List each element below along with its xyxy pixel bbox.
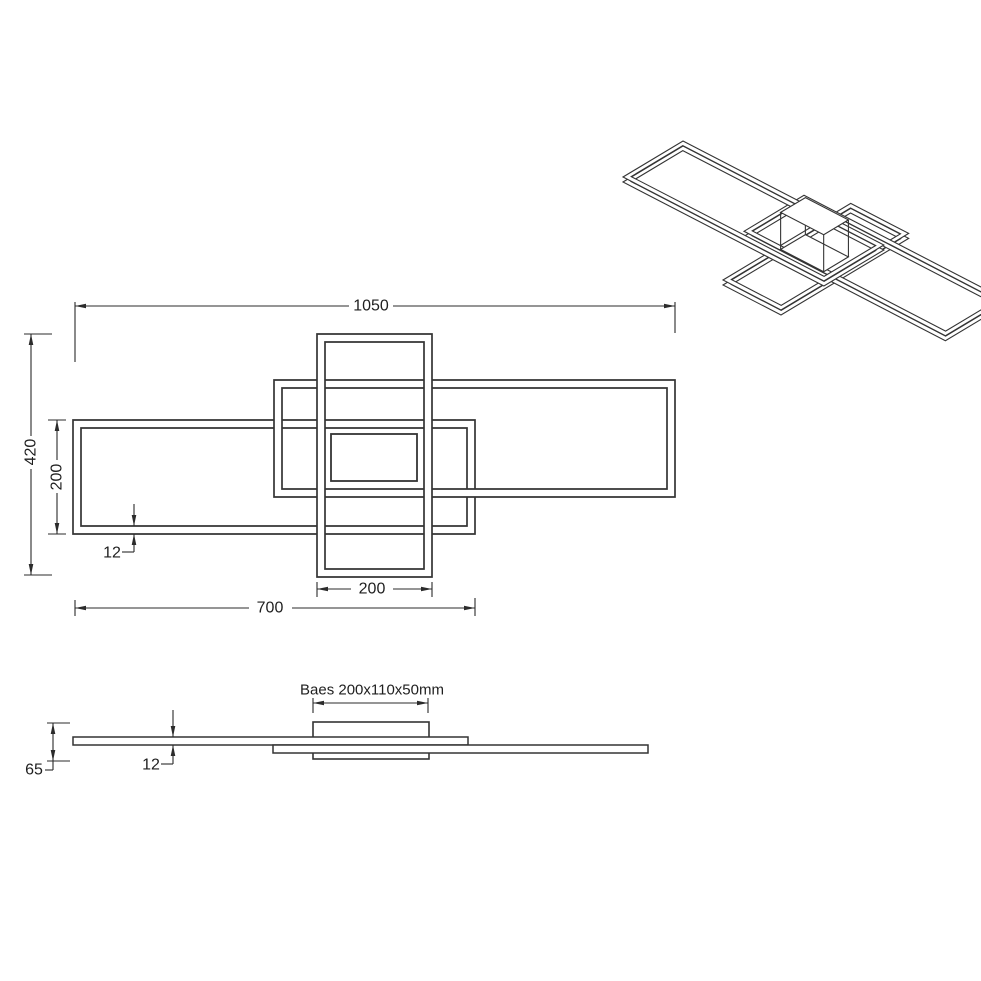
arrowhead [313,701,324,706]
dimension-label: 1050 [353,298,389,315]
arrowhead [132,534,137,545]
arrowhead [55,420,60,431]
arrowhead [171,745,176,756]
side-view: Baes 200x110x50mm1265 [25,682,648,779]
mounting-base-outline [331,434,417,481]
arrowhead [421,587,432,592]
dimension-label: 700 [257,600,284,617]
arrowhead [51,723,56,734]
arrowhead [75,606,86,611]
iso-view [623,141,981,341]
arrowhead [132,515,137,526]
arrowhead [55,523,60,534]
arrowhead [417,701,428,706]
dimension-label: 65 [25,762,43,779]
technical-drawing-page: 105042020012200700Baes 200x110x50mm1265 [0,0,981,981]
plan-view: 105042020012200700 [23,298,676,617]
arrowhead [29,564,34,575]
dimension-label: Baes 200x110x50mm [300,682,444,699]
dimension-label: 200 [359,581,386,598]
arrowhead [664,304,675,309]
dimension-label: 200 [49,464,66,491]
dim-height-65: 65 [25,723,70,779]
dim-width-700: 700 [75,598,475,617]
upper-frame-profile [73,737,468,745]
ceiling-lamp-dimension-drawing: 105042020012200700Baes 200x110x50mm1265 [0,0,981,981]
arrowhead [51,750,56,761]
arrowhead [75,304,86,309]
dim-width-200: 200 [317,581,432,598]
arrowhead [171,726,176,737]
dim-width-1050: 1050 [75,298,675,363]
dim-base-size: Baes 200x110x50mm [300,682,444,714]
dim-height-420: 420 [23,334,53,575]
arrowhead [464,606,475,611]
dimension-label: 420 [23,439,40,466]
arrowhead [29,334,34,345]
dim-height-200: 200 [48,420,66,534]
lower-frame-profile [273,745,648,753]
dimension-label: 12 [142,757,160,774]
dimension-label: 12 [103,545,121,562]
arrowhead [317,587,328,592]
